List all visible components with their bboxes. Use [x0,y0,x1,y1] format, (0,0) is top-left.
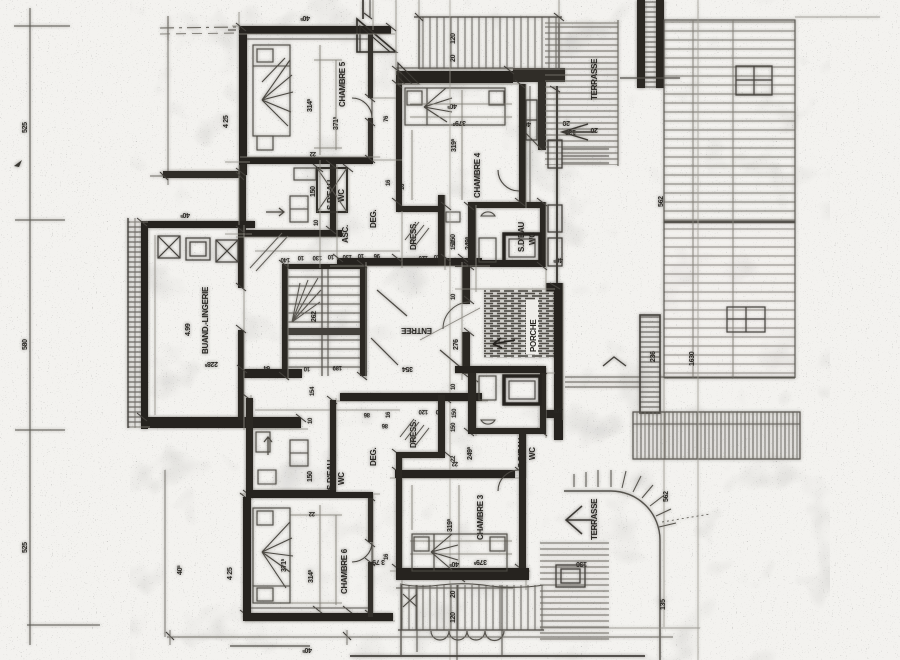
svg-text:150: 150 [451,240,457,250]
svg-text:86: 86 [363,411,370,417]
svg-text:135: 135 [660,599,667,610]
svg-text:ENTREE: ENTREE [400,326,432,335]
svg-text:10: 10 [308,417,314,424]
svg-text:10: 10 [297,254,304,260]
svg-text:4 25: 4 25 [223,115,230,128]
svg-text:CHAMBRE 5: CHAMBRE 5 [338,61,347,107]
svg-text:76: 76 [384,115,390,122]
svg-text:10: 10 [451,383,457,390]
svg-text:WC: WC [337,472,346,485]
svg-text:276: 276 [453,339,460,350]
svg-text:TERRASSE: TERRASSE [590,58,599,100]
svg-text:CHAMBRE 4: CHAMBRE 4 [473,152,482,198]
svg-text:22: 22 [451,460,458,466]
svg-text:22: 22 [308,510,315,516]
svg-text:120: 120 [418,254,428,260]
svg-text:16: 16 [400,183,406,190]
svg-text:DEG.: DEG. [369,448,378,466]
svg-text:10: 10 [314,219,320,226]
svg-text:16: 16 [386,411,392,418]
svg-text:236: 236 [650,351,657,362]
svg-text:354: 354 [402,365,413,372]
svg-text:150: 150 [310,186,317,197]
svg-text:22: 22 [309,150,316,156]
svg-text:120: 120 [450,33,457,44]
svg-text:10: 10 [303,365,310,371]
svg-text:16: 16 [386,179,392,186]
svg-text:S.D'EAU: S.D'EAU [517,221,526,252]
svg-text:150: 150 [452,408,458,418]
svg-text:TERRASSE: TERRASSE [590,498,599,540]
svg-text:10: 10 [435,408,442,414]
svg-text:120: 120 [450,612,457,623]
svg-text:4 25: 4 25 [227,567,234,580]
svg-text:DEG.: DEG. [369,210,378,228]
svg-text:CHAMBRE 6: CHAMBRE 6 [340,548,349,594]
svg-text:562: 562 [663,491,670,502]
svg-text:130: 130 [312,254,322,260]
svg-text:189: 189 [332,364,342,370]
svg-text:154: 154 [310,386,316,396]
svg-text:10: 10 [433,253,440,259]
svg-text:96: 96 [373,252,380,258]
svg-text:20: 20 [450,54,457,62]
svg-text:WC: WC [528,447,537,460]
svg-text:1630: 1630 [689,351,696,366]
svg-text:580: 580 [22,339,29,350]
svg-text:ASC.: ASC. [341,225,350,243]
svg-text:64: 64 [263,364,270,370]
svg-text:20: 20 [450,590,457,598]
svg-text:10: 10 [327,253,334,259]
svg-text:562: 562 [658,196,665,207]
svg-text:140: 140 [280,256,290,262]
svg-text:86: 86 [381,422,388,428]
svg-text:CHAMBRE 3: CHAMBRE 3 [476,494,485,540]
svg-text:525: 525 [22,122,29,133]
svg-text:150: 150 [451,422,457,432]
svg-text:10: 10 [357,252,364,258]
svg-text:4.99: 4.99 [185,323,192,336]
svg-text:PORCHE: PORCHE [529,319,538,352]
svg-text:525: 525 [22,542,29,553]
svg-text:BUAND.-LINGERIE: BUAND.-LINGERIE [201,286,210,354]
svg-text:10: 10 [451,293,457,300]
svg-text:262: 262 [311,311,318,322]
svg-text:DRESS.: DRESS. [409,222,418,250]
svg-text:S.D'EAU: S.D'EAU [326,459,335,490]
svg-text:150: 150 [307,471,314,482]
svg-text:120: 120 [418,408,428,414]
